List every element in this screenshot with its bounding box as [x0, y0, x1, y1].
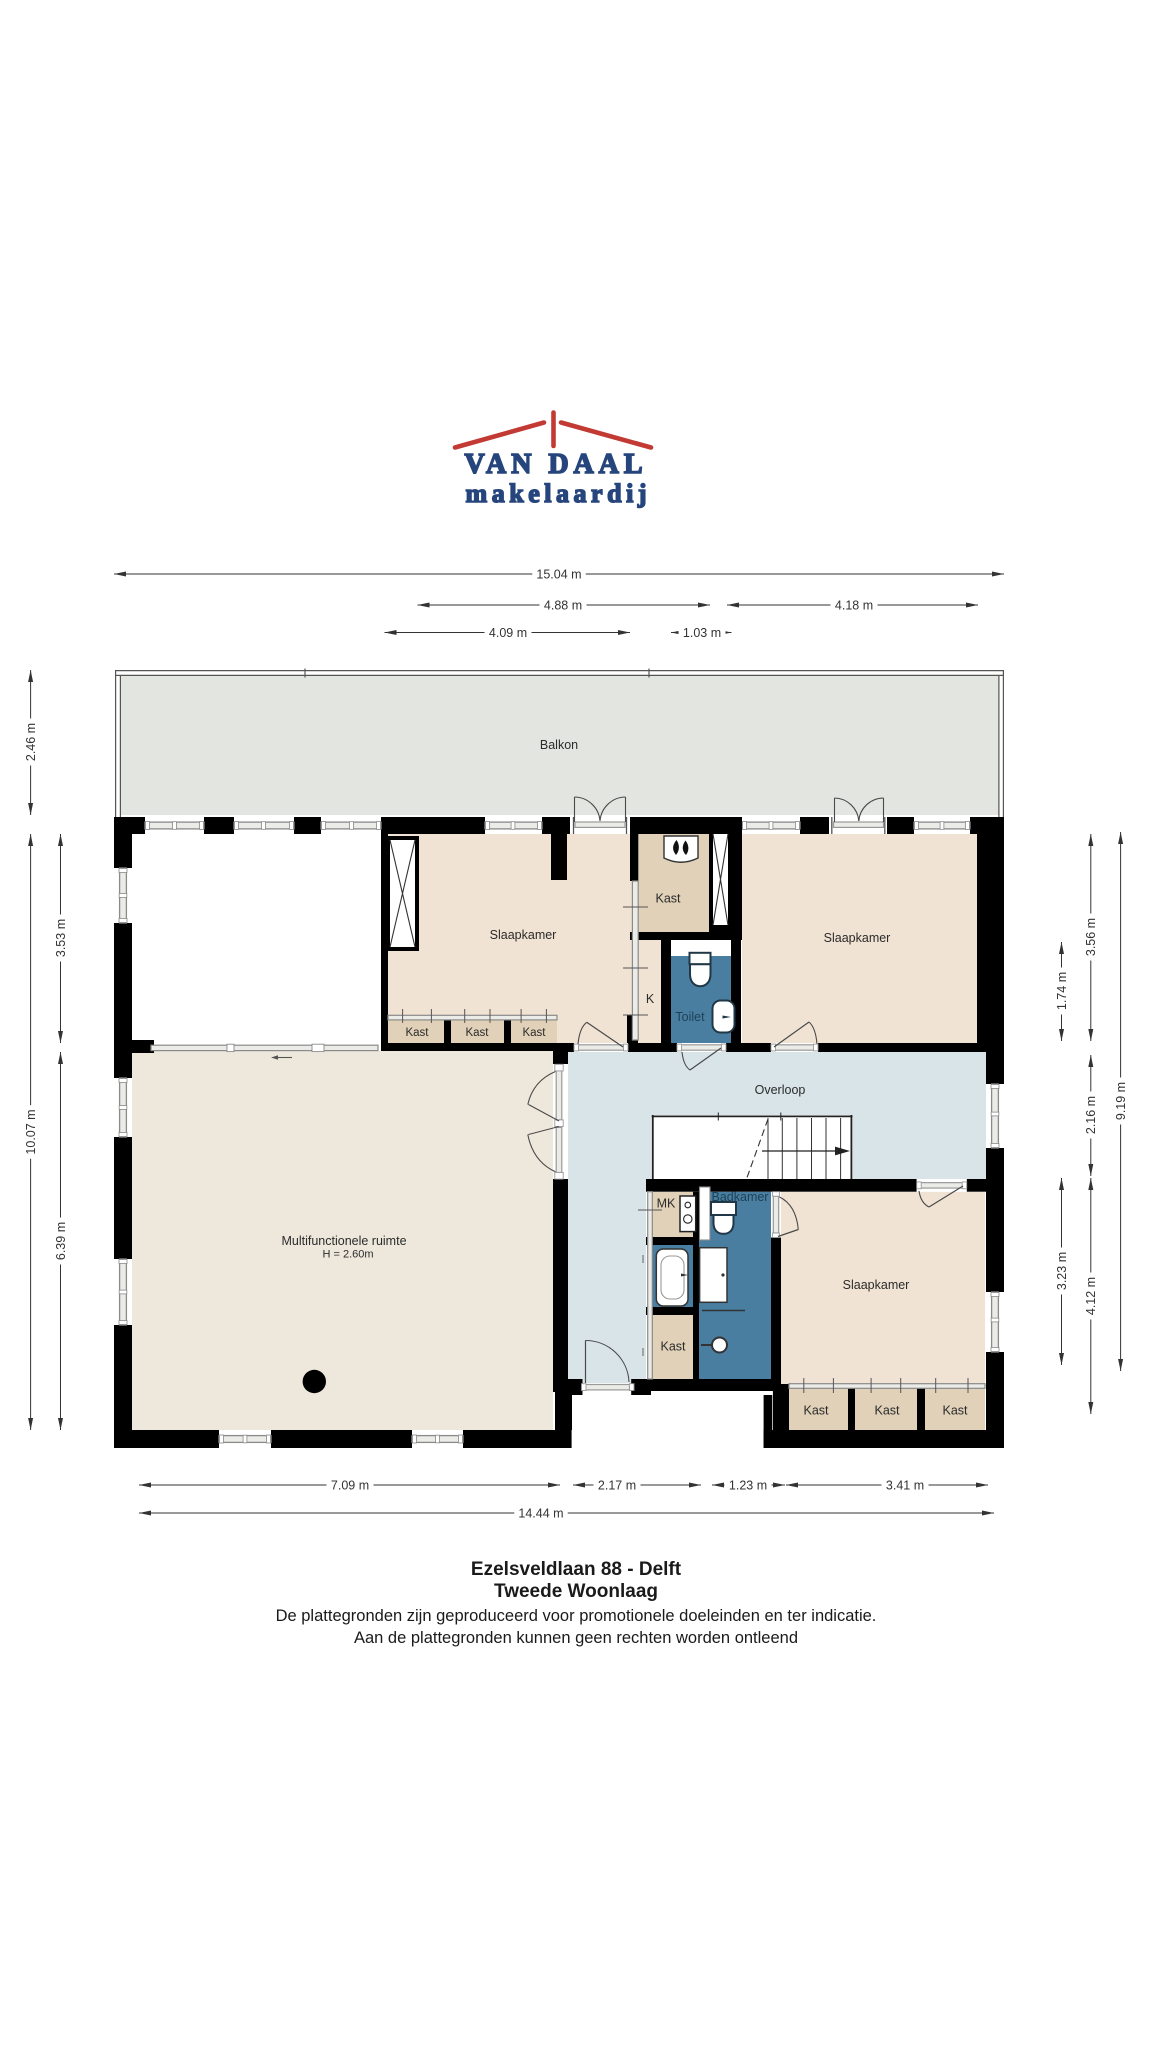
svg-text:Kast: Kast	[942, 1404, 968, 1418]
svg-text:Kast: Kast	[655, 892, 681, 906]
svg-text:3.41 m: 3.41 m	[886, 1478, 924, 1492]
svg-text:9.19 m: 9.19 m	[1114, 1082, 1128, 1120]
svg-text:7.09 m: 7.09 m	[331, 1478, 369, 1492]
svg-text:Slaapkamer: Slaapkamer	[490, 928, 557, 942]
svg-text:Overloop: Overloop	[755, 1083, 806, 1097]
svg-text:De plattegronden zijn geproduc: De plattegronden zijn geproduceerd voor …	[276, 1607, 877, 1625]
svg-text:Ezelsveldlaan 88 - Delft: Ezelsveldlaan 88 - Delft	[471, 1559, 682, 1580]
svg-text:Aan de plattegronden kunnen ge: Aan de plattegronden kunnen geen rechten…	[354, 1629, 798, 1647]
svg-text:1.03 m: 1.03 m	[683, 626, 721, 640]
svg-text:1.23 m: 1.23 m	[729, 1478, 767, 1492]
svg-text:15.04 m: 15.04 m	[536, 567, 581, 581]
svg-text:Toilet: Toilet	[675, 1010, 705, 1024]
svg-text:Slaapkamer: Slaapkamer	[824, 931, 891, 945]
svg-text:2.16 m: 2.16 m	[1084, 1096, 1098, 1134]
svg-text:3.23 m: 3.23 m	[1055, 1252, 1069, 1290]
svg-text:Badkamer: Badkamer	[712, 1190, 769, 1204]
svg-text:1.74 m: 1.74 m	[1055, 972, 1069, 1010]
svg-text:Kast: Kast	[803, 1404, 829, 1418]
svg-text:3.53 m: 3.53 m	[54, 919, 68, 957]
svg-text:Slaapkamer: Slaapkamer	[843, 1278, 910, 1292]
svg-text:2.17 m: 2.17 m	[598, 1478, 636, 1492]
svg-text:K: K	[646, 992, 655, 1006]
svg-text:4.09 m: 4.09 m	[489, 626, 527, 640]
svg-text:6.39 m: 6.39 m	[54, 1222, 68, 1260]
svg-text:Kast: Kast	[522, 1027, 546, 1039]
svg-text:H = 2.60m: H = 2.60m	[322, 1249, 373, 1261]
svg-text:Kast: Kast	[874, 1404, 900, 1418]
svg-text:3.56 m: 3.56 m	[1084, 918, 1098, 956]
svg-text:makelaardij: makelaardij	[466, 479, 647, 508]
svg-text:VAN DAAL: VAN DAAL	[465, 449, 644, 480]
svg-text:4.12 m: 4.12 m	[1084, 1277, 1098, 1315]
svg-text:2.46 m: 2.46 m	[24, 723, 38, 761]
svg-text:Kast: Kast	[465, 1027, 489, 1039]
svg-text:10.07 m: 10.07 m	[24, 1109, 38, 1154]
svg-text:Kast: Kast	[660, 1340, 686, 1354]
svg-text:MK: MK	[657, 1197, 676, 1211]
svg-text:4.18 m: 4.18 m	[835, 598, 873, 612]
svg-text:Multifunctionele ruimte: Multifunctionele ruimte	[281, 1234, 406, 1248]
svg-text:Tweede Woonlaag: Tweede Woonlaag	[494, 1581, 658, 1602]
svg-text:14.44 m: 14.44 m	[518, 1506, 563, 1520]
svg-text:Balkon: Balkon	[540, 738, 578, 752]
svg-text:4.88 m: 4.88 m	[544, 598, 582, 612]
svg-text:Kast: Kast	[405, 1027, 429, 1039]
